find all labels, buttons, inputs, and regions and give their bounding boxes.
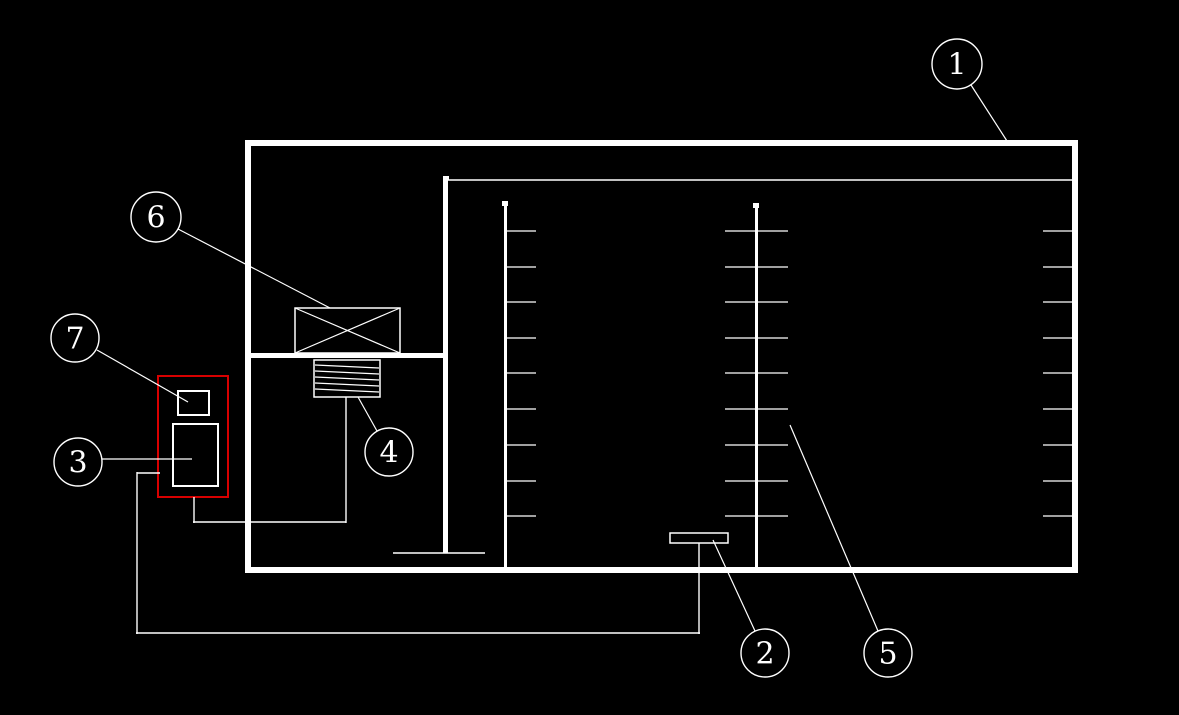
coil-fin-line-3 (315, 377, 379, 380)
grille-stem-left (504, 203, 507, 567)
callout-label-1: 1 (947, 48, 966, 83)
callout-leader-1 (971, 85, 1007, 141)
callout-label-6: 6 (146, 201, 165, 236)
callout-label-7: 7 (65, 322, 84, 357)
coil-fin-line-4 (315, 383, 379, 386)
callout-label-2: 2 (755, 637, 774, 672)
floor-outlet-box (670, 533, 728, 543)
drawing-canvas[interactable]: 1234567 (0, 0, 1179, 715)
small-device-box (178, 391, 209, 415)
node-marker-left-stem (502, 201, 508, 206)
callout-label-3: 3 (68, 446, 87, 481)
grille-stem-middle (755, 205, 758, 567)
coil-fin-line-5 (315, 389, 379, 392)
callout-label-4: 4 (379, 436, 398, 471)
callout-leader-5 (790, 425, 878, 631)
callout-leader-4 (358, 397, 377, 431)
outer-wall-bottom (245, 567, 1078, 573)
cad-svg: 1234567 (0, 0, 1179, 715)
coil-fin-line-1 (315, 365, 379, 368)
callout-leader-2 (713, 540, 755, 631)
inner-wall-vertical (443, 178, 448, 553)
outer-wall-top (245, 140, 1078, 146)
outer-wall-left (245, 140, 251, 573)
control-device-box (173, 424, 218, 486)
outer-wall-right (1072, 140, 1078, 573)
callout-leader-6 (178, 229, 330, 308)
node-marker-middle-stem (753, 203, 759, 208)
callout-label-5: 5 (878, 637, 897, 672)
coil-fin-line-2 (315, 371, 379, 374)
